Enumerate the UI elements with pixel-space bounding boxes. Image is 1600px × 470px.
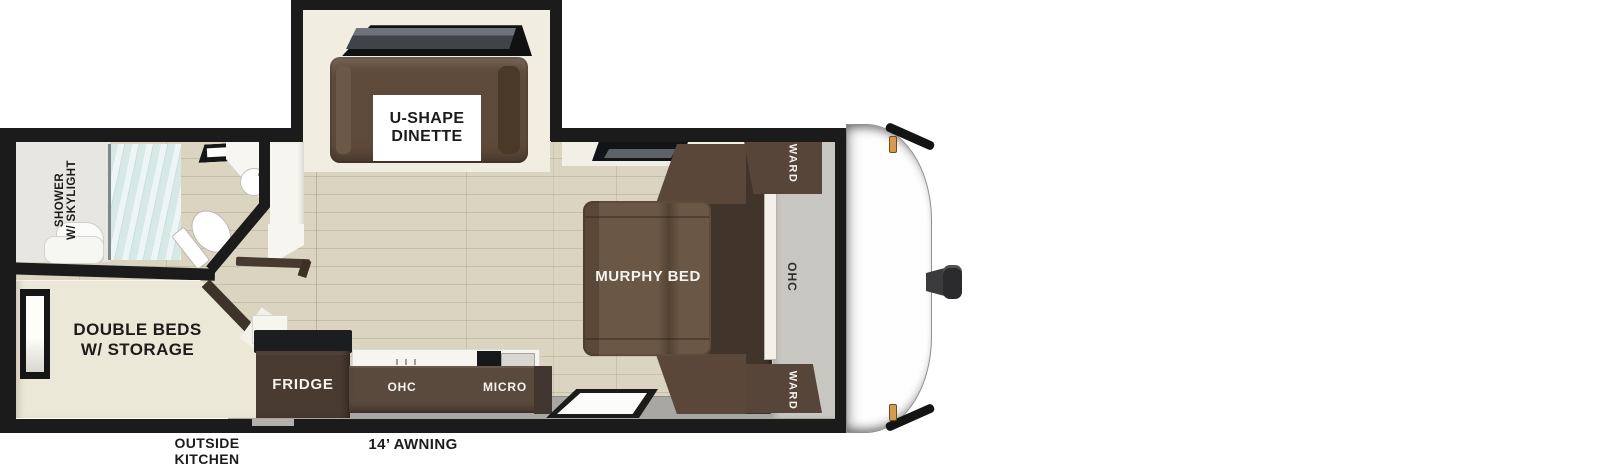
double-beds-label-line1: DOUBLE BEDS [73,320,201,340]
roof-vent-pane [604,149,676,158]
double-beds-label: DOUBLE BEDS W/ STORAGE [55,320,220,360]
outside-kitchen-label: OUTSIDE KITCHEN [140,433,274,469]
kitchen-ohc-label: OHC [372,380,432,394]
rear-window-pane [26,296,44,372]
fridge-countertop [254,330,352,353]
marker-light-top [889,136,897,153]
dinette-bench-bolster-left [336,66,351,154]
bathroom-vertical-wall [259,141,270,207]
shower-label: SHOWER W/ SKYLIGHT [50,135,82,265]
fridge-label: FRIDGE [272,376,333,393]
kitchen-micro-label: MICRO [475,380,535,394]
murphy-seam-top [585,216,709,218]
wardrobe-cabinet [270,142,304,228]
dinette-window-pane [346,28,516,49]
outside-kitchen-line1: OUTSIDE [174,435,239,451]
shower-glass-door [108,144,181,260]
dinette-label-line2: DINETTE [391,128,462,146]
dinette-label-line1: U-SHAPE [390,110,465,128]
murphy-bed-label: MURPHY BED [585,268,711,284]
floorplan-canvas: U-SHAPE DINETTE SHOWER W/ SKYLIGHT DOUBL… [0,0,1600,470]
ward-top-label: WARD [784,134,799,194]
front-ohc-strip [764,192,777,360]
top-wall-right [551,128,848,142]
awning-label: 14’ AWNING [340,436,486,454]
ward-bottom-label: WARD [784,361,799,421]
dinette-label-box: U-SHAPE DINETTE [373,95,481,161]
outside-kitchen-hatch [252,419,294,426]
top-wall-left [0,128,303,142]
microwave-unit [477,351,501,367]
double-beds-label-line2: W/ STORAGE [81,340,194,360]
marker-light-bottom [889,404,897,421]
shower-label-line1: SHOWER [54,173,66,227]
front-ohc-label: OHC [783,247,799,307]
front-cap [846,124,932,433]
left-wall [0,128,16,433]
murphy-seam-bottom [585,338,709,340]
hitch-coupler [943,265,962,299]
kitchen-faucet-marks [396,359,420,365]
dinette-bench-bolster-right [498,66,520,154]
bottom-wall [0,419,850,433]
outside-kitchen-line2: KITCHEN [174,451,239,467]
fridge: FRIDGE [256,351,350,418]
kitchen-cabinet-end [534,366,552,414]
shower-label-line2: W/ SKYLIGHT [66,160,78,240]
